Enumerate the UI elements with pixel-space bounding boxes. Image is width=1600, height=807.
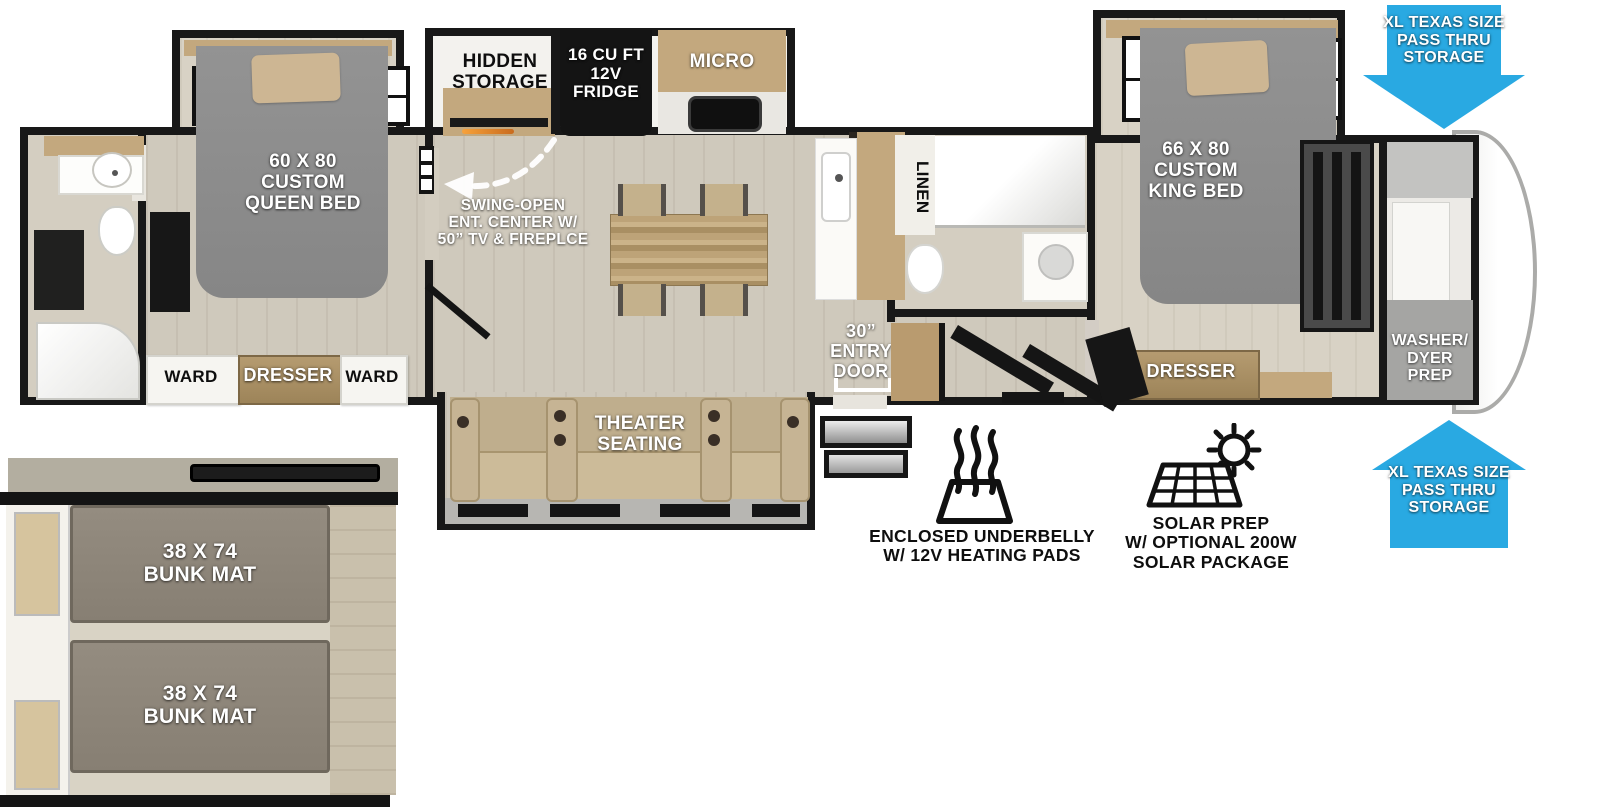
theater-window-slit-icon: [550, 504, 620, 517]
theater-sofa-cushions: [452, 451, 806, 499]
king-wardrobe: [1300, 140, 1374, 332]
storage-arrow-bottom-head-icon: [1372, 420, 1526, 470]
rear-bath-faucet-icon: [112, 170, 118, 176]
bunk-skylight-icon: [190, 464, 380, 482]
rear-bath-shower: [36, 322, 140, 400]
linen-label: LINEN: [899, 140, 931, 234]
hall-pantry: [891, 323, 945, 401]
washer-dryer-label: WASHER/ DYER PREP: [1382, 332, 1478, 385]
queen-wardrobe-left-label: WARD: [148, 368, 234, 387]
queen-wardrobe-right-label: WARD: [332, 368, 412, 387]
entry-step: [824, 450, 908, 478]
queen-pillow-icon: [251, 52, 341, 103]
stove-icon: [688, 96, 762, 132]
cupholder-icon: [457, 416, 469, 428]
storage-arrow-top-head-icon: [1363, 75, 1525, 129]
theater-armrest: [450, 398, 480, 502]
dining-chair: [618, 184, 666, 216]
theater-window-slit-icon: [660, 504, 730, 517]
cupholder-icon: [787, 416, 799, 428]
bunk-cabinet-door: [14, 512, 60, 616]
closet-upper-cabinet: [1387, 142, 1473, 198]
fridge-label: 16 CU FT 12V FRIDGE: [558, 46, 654, 102]
theater-window-slit-icon: [458, 504, 528, 517]
solar-prep-icon: [1145, 423, 1265, 521]
rear-bath-toilet-icon: [98, 206, 136, 256]
king-bed-label: 66 X 80 CUSTOM KING BED: [1116, 140, 1276, 203]
bunk-floor-strip: [330, 505, 396, 795]
bunk-mat-top-label: 38 X 74 BUNK MAT: [90, 540, 310, 586]
kitchen-sink-icon: [821, 152, 851, 222]
theater-armrest: [780, 398, 810, 502]
dining-chair: [618, 284, 666, 316]
bunk-wall-bottom: [0, 795, 390, 807]
kitchen-faucet-icon: [835, 174, 843, 182]
entry-door-threshold: [833, 395, 887, 409]
queen-bed-label: 60 X 80 CUSTOM QUEEN BED: [213, 152, 393, 215]
heating-pads-icon: [925, 425, 1025, 525]
mid-bath-toilet-icon: [906, 244, 944, 294]
mid-bath-sink-icon: [1038, 244, 1074, 280]
bunk-mat-bottom-label: 38 X 74 BUNK MAT: [90, 682, 310, 728]
bedroom-railing-icon: [419, 146, 434, 194]
bunk-cabinet-door: [14, 700, 60, 790]
bunk-room-inset: 38 X 74 BUNK MAT 38 X 74 BUNK MAT: [0, 450, 410, 807]
stairs-icon: [1002, 392, 1064, 403]
ent-center-note: SWING-OPEN ENT. CENTER W/ 50” TV & FIREP…: [428, 197, 598, 248]
underbelly-label: ENCLOSED UNDERBELLY W/ 12V HEATING PADS: [857, 527, 1107, 566]
bunk-wall-top: [0, 492, 398, 505]
dining-chair: [700, 184, 748, 216]
king-bench: [1260, 372, 1332, 398]
queen-tv-icon: [150, 212, 190, 312]
rear-bath-shelf: [44, 136, 144, 156]
dining-chair: [700, 284, 748, 316]
entry-door-bracket-icon: [834, 378, 838, 392]
floorplan-canvas: 60 X 80 CUSTOM QUEEN BED WARD DRESSER WA…: [0, 0, 1600, 807]
rear-bath-vanity: [34, 230, 84, 310]
storage-callout-top-label: XL TEXAS SIZE PASS THRU STORAGE: [1380, 14, 1508, 67]
solar-label: SOLAR PREP W/ OPTIONAL 200W SOLAR PACKAG…: [1118, 514, 1304, 572]
micro-label: MICRO: [658, 52, 786, 73]
entry-door-bracket-icon: [836, 388, 890, 392]
theater-seating-label: THEATER SEATING: [560, 414, 720, 456]
entry-step: [820, 416, 912, 448]
queen-dresser-label: DRESSER: [238, 366, 338, 386]
theater-window-slit-icon: [752, 504, 800, 517]
king-pillow-icon: [1185, 40, 1270, 96]
dining-table: [610, 214, 768, 286]
king-dresser-label: DRESSER: [1126, 362, 1256, 382]
storage-callout-bottom-label: XL TEXAS SIZE PASS THRU STORAGE: [1380, 464, 1518, 517]
